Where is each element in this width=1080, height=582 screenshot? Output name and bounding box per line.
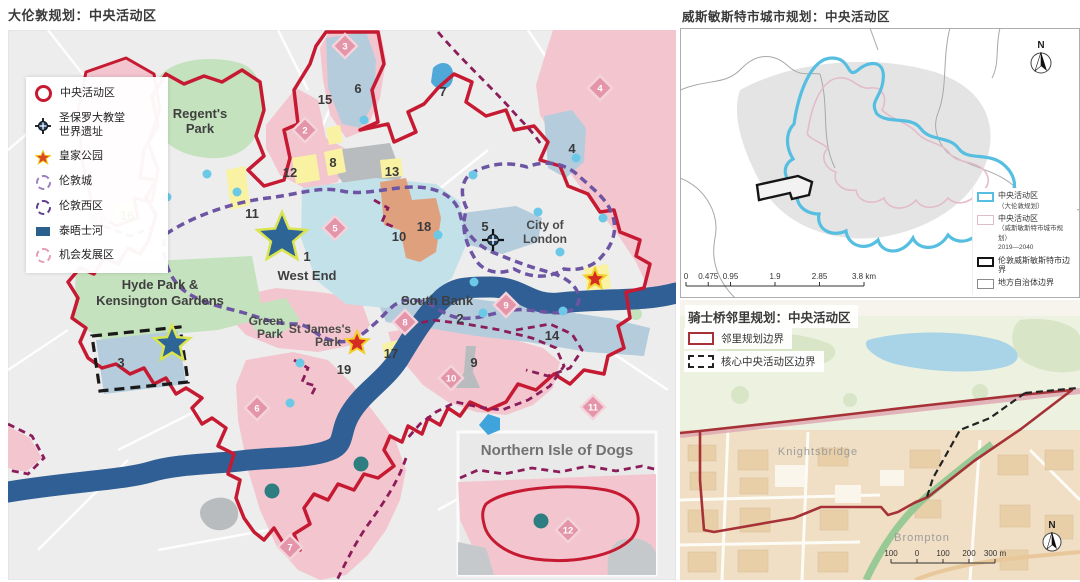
svg-text:12: 12 (563, 526, 574, 537)
area-number-3: 3 (117, 355, 124, 370)
knightsbridge-caz-map: Knightsbridge Brompton N 1000100200300 m… (680, 300, 1080, 580)
westminster-map-title: 威斯敏斯特市城市规划：中央活动区 (682, 6, 890, 25)
svg-text:6: 6 (254, 404, 259, 415)
teal-dot (534, 514, 549, 529)
local-boundary-swatch (977, 279, 994, 289)
core-caz-boundary-swatch (688, 355, 714, 368)
area-number-9: 9 (470, 355, 477, 370)
legend-row-royal-parks: 皇家公园 (35, 150, 160, 165)
area-number-14: 14 (545, 328, 560, 343)
svg-text:2: 2 (302, 126, 307, 137)
label-regents-park-2: Park (186, 121, 215, 136)
svg-text:5: 5 (332, 224, 338, 235)
svg-text:3: 3 (342, 42, 347, 53)
area-number-4: 4 (568, 141, 576, 156)
caz-dot (296, 359, 305, 368)
legend-row-opportunity: 机会发展区 (35, 248, 160, 263)
scale-tick-label: 100 (884, 549, 898, 558)
scale-tick-label: 300 m (984, 549, 1007, 558)
area-number-19: 19 (337, 362, 351, 377)
svg-text:11: 11 (588, 403, 599, 414)
area-number-8: 8 (329, 155, 336, 170)
scale-tick-label: 1.9 (769, 272, 781, 281)
area-number-13: 13 (385, 164, 399, 179)
legend-label: 中央活动区 (60, 87, 115, 101)
legend-row-westminster-boundary: 伦敦威斯敏斯特市边界 (977, 256, 1074, 274)
legend-label: 伦敦威斯敏斯特市边界 (998, 256, 1074, 274)
area-number-18: 18 (417, 219, 431, 234)
svg-text:9: 9 (503, 301, 508, 312)
legend-label: 核心中央活动区边界 (721, 354, 816, 369)
northern-isle-of-dogs-inset: Northern Isle of Dogs (458, 432, 658, 575)
area-number-5: 5 (481, 219, 488, 234)
city-of-london-icon (35, 175, 51, 190)
area-number-6: 6 (354, 81, 361, 96)
legend-label: 中央活动区 （大伦敦规划） (998, 191, 1044, 210)
legend-row-caz-london: 中央活动区 （大伦敦规划） (977, 191, 1074, 210)
scale-tick-label: 0.95 (723, 272, 739, 281)
scale-tick-label: 200 (962, 549, 976, 558)
label-city-of-london-2: London (523, 232, 567, 246)
legend-row-neighbourhood: 邻里规划边界 (684, 328, 792, 349)
label-knightsbridge: Knightsbridge (778, 446, 858, 458)
area-number-17: 17 (384, 346, 398, 361)
westminster-caz-map: N 00.4750.951.92.853.8 km 中央活动区 （大伦敦规划） (680, 28, 1080, 298)
label-hyde-park-2: Kensington Gardens (96, 293, 224, 308)
caz-dot (470, 278, 479, 287)
scale-tick-label: 3.8 km (852, 272, 876, 281)
area-number-7: 7 (439, 84, 446, 99)
caz-dot (434, 231, 443, 240)
scale-tick-label: 2.85 (812, 272, 828, 281)
svg-text:4: 4 (597, 84, 603, 95)
legend-label: 圣保罗大教堂世界遗址 (59, 112, 125, 140)
legend-label: 地方自治体边界 (998, 278, 1054, 287)
svg-text:10: 10 (446, 374, 457, 385)
legend-label: 邻里规划边界 (721, 331, 784, 346)
label-west-end: West End (278, 268, 337, 283)
area-number-15: 15 (318, 92, 332, 107)
figure-three-london-planning-maps: 大伦敦规划：中央活动区 (0, 0, 1080, 582)
legend-row-caz: 中央活动区 (35, 85, 160, 102)
caz-london-swatch (977, 192, 994, 202)
svg-text:8: 8 (402, 318, 407, 329)
st-pauls-compass-icon (35, 118, 51, 134)
label-st-james-park-2: Park (315, 335, 341, 349)
teal-dot (265, 484, 280, 499)
caz-westminster-swatch (977, 215, 994, 225)
legend-label: 泰晤士河 (59, 225, 103, 239)
scale-tick-label: 0.475 (698, 272, 719, 281)
caz-dot (534, 208, 543, 217)
area-number-10: 10 (392, 229, 406, 244)
area-number-12: 12 (283, 165, 297, 180)
opportunity-area-icon (35, 248, 51, 263)
label-hyde-park: Hyde Park & (122, 277, 199, 292)
caz-dot (286, 399, 295, 408)
legend-row-caz-westminster: 中央活动区 （威斯敏斯特市城市规划） 2019—2040 (977, 214, 1074, 252)
legend-label: 伦敦西区 (59, 200, 103, 214)
legend-label: 皇家公园 (59, 150, 103, 164)
label-south-bank: South Bank (401, 293, 474, 308)
legend-row-st-pauls: 圣保罗大教堂世界遗址 (35, 112, 160, 140)
neighbourhood-boundary-swatch (688, 332, 714, 345)
label-city-of-london: City of (526, 218, 564, 232)
scale-tick-label: 0 (915, 549, 920, 558)
legend-row-city-of-london: 伦敦城 (35, 175, 160, 190)
west-end-icon (35, 200, 51, 215)
teal-dot (354, 457, 369, 472)
knightsbridge-legend: 邻里规划边界 核心中央活动区边界 (684, 328, 824, 374)
svg-text:7: 7 (287, 543, 292, 554)
label-green-park: Green (249, 314, 284, 328)
legend-label: 伦敦城 (59, 175, 92, 189)
north-label: N (1037, 40, 1044, 51)
caz-dot (599, 214, 608, 223)
inset-title: Northern Isle of Dogs (481, 442, 634, 459)
legend-label: 中央活动区 （威斯敏斯特市城市规划） 2019—2040 (998, 214, 1074, 252)
thames-icon (35, 227, 51, 236)
caz-dot (233, 188, 242, 197)
north-label: N (1048, 520, 1055, 531)
knightsbridge-map-title: 骑士桥邻里规划：中央活动区 (685, 305, 858, 328)
scale-tick-label: 0 (684, 272, 689, 281)
left-map-title: 大伦敦规划：中央活动区 (8, 5, 157, 24)
caz-dot (203, 170, 212, 179)
caz-dot (479, 309, 488, 318)
legend-row-core-caz: 核心中央活动区边界 (684, 351, 824, 372)
label-regents-park: Regent's (173, 106, 227, 121)
caz-dot (559, 307, 568, 316)
label-green-park-2: Park (257, 327, 283, 341)
legend-row-west-end: 伦敦西区 (35, 200, 160, 215)
label-brompton: Brompton (894, 532, 950, 544)
royal-park-star-icon (35, 150, 51, 165)
scale-tick-label: 100 (936, 549, 950, 558)
area-number-11: 11 (245, 206, 259, 221)
label-st-james-park: St James's (289, 322, 352, 336)
greater-london-caz-map: Northern Isle of Dogs Regent's Park Hyde… (8, 30, 676, 580)
westminster-boundary-swatch (977, 257, 994, 267)
legend-label: 机会发展区 (59, 249, 114, 263)
legend-row-local-boundary: 地方自治体边界 (977, 278, 1074, 289)
left-map-legend: 中央活动区 圣保罗大教堂世界遗址 (26, 77, 168, 273)
westminster-legend: 中央活动区 （大伦敦规划） 中央活动区 （威斯敏斯特市城市规划） 2019—20… (972, 188, 1077, 295)
area-number-2: 2 (456, 311, 463, 326)
caz-ring-icon (35, 85, 52, 102)
caz-dot (469, 171, 478, 180)
legend-row-thames: 泰晤士河 (35, 225, 160, 239)
caz-dot (360, 116, 369, 125)
area-number-1: 1 (303, 249, 310, 264)
caz-dot (556, 248, 565, 257)
